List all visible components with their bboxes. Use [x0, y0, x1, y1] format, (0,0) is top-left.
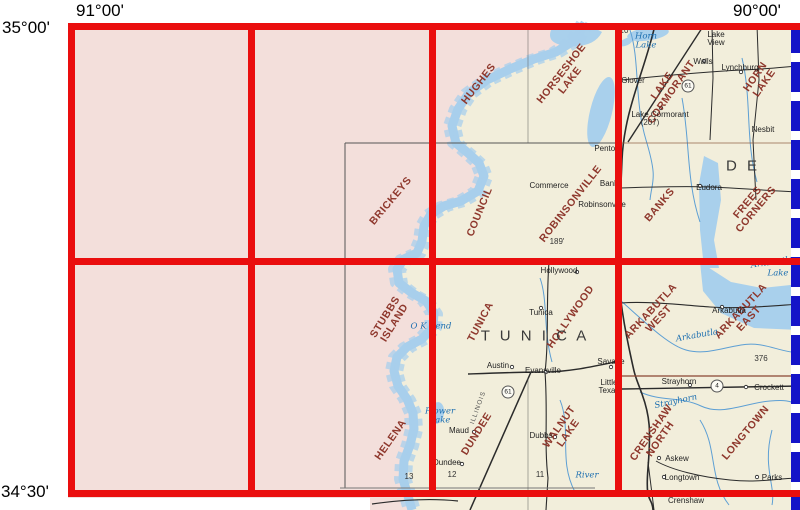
quad-cell-r1c4[interactable] [615, 23, 800, 258]
quad-cell-r2c1[interactable] [68, 258, 248, 490]
quad-cell-r1c2[interactable] [248, 23, 429, 258]
quad-cell-r2c3[interactable] [429, 258, 615, 490]
latitude-label-north: 35°00' [2, 18, 50, 38]
longitude-label-east: 90°00' [733, 1, 781, 21]
town-label-crenshaw: Crenshaw [668, 497, 704, 505]
latitude-label-south: 34°30' [1, 482, 49, 502]
grid-line-horizontal-34-30 [68, 490, 800, 497]
quad-index-map: HUGHESHORSESHOE LAKELAKE CORMORANTHORN L… [0, 0, 800, 510]
longitude-label-west: 91°00' [76, 1, 124, 21]
quad-cell-r2c2[interactable] [248, 258, 429, 490]
quad-cell-r1c3[interactable] [429, 23, 615, 258]
quad-cell-r1c1[interactable] [68, 23, 248, 258]
quad-cell-r2c4[interactable] [615, 258, 800, 490]
